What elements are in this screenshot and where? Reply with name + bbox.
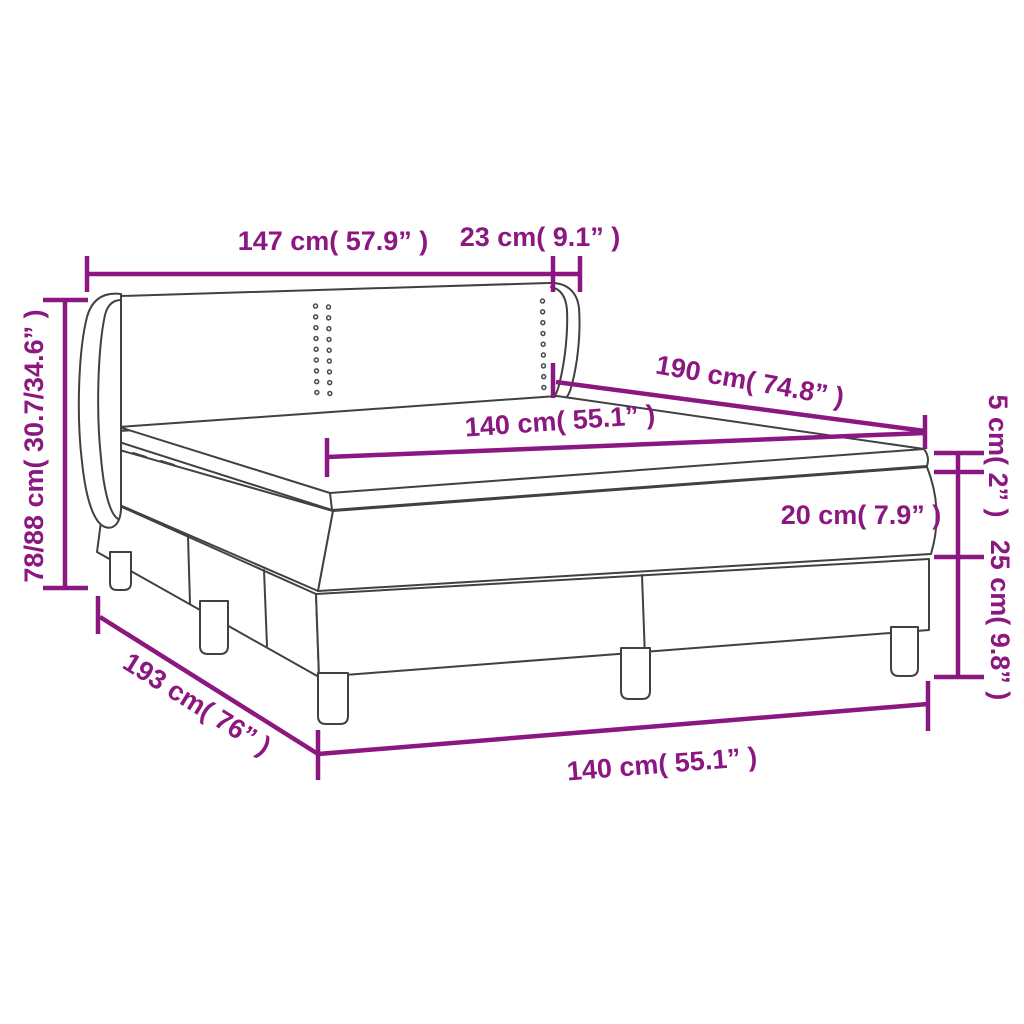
leg-back-left bbox=[110, 552, 131, 590]
label-base-height: 25 cm( 9.8” ) bbox=[985, 540, 1015, 701]
label-base-width: 140 cm( 55.1” ) bbox=[566, 742, 758, 787]
label-total-height: 78/88 cm( 30.7/34.6” ) bbox=[19, 309, 49, 582]
label-headboard-width: 147 cm( 57.9” ) bbox=[238, 226, 429, 256]
diagram-canvas: 147 cm( 57.9” ) 23 cm( 9.1” ) 78/88 cm( … bbox=[0, 0, 1024, 1024]
bed-dimension-diagram: 147 cm( 57.9” ) 23 cm( 9.1” ) 78/88 cm( … bbox=[0, 0, 1024, 1024]
leg-mid-left bbox=[200, 601, 228, 654]
leg-front-middle bbox=[621, 648, 650, 699]
label-base-length: 193 cm( 76” ) bbox=[118, 647, 276, 762]
leg-front-corner bbox=[318, 673, 348, 724]
label-headboard-wing-depth: 23 cm( 9.1” ) bbox=[460, 222, 621, 252]
label-mattress-height: 20 cm( 7.9” ) bbox=[781, 500, 942, 530]
label-topper-height: 5 cm( 2” ) bbox=[983, 394, 1013, 517]
label-bed-length: 190 cm( 74.8” ) bbox=[654, 350, 847, 413]
leg-front-right bbox=[891, 627, 918, 676]
headboard-left-wing bbox=[79, 294, 121, 528]
